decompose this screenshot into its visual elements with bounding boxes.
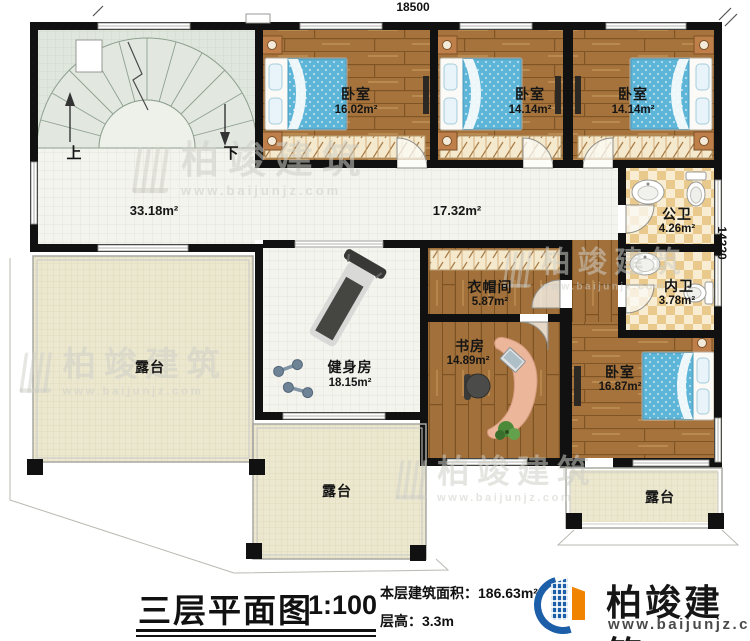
plan-scale: 1:100 <box>308 590 377 621</box>
room-label-private-bathroom: 内卫 <box>664 279 694 294</box>
stairs-down-label: 下 <box>223 146 238 162</box>
toilet-icon-public-bathroom <box>686 172 706 206</box>
room-label-bedroom-bottom: 卧室 <box>605 365 635 380</box>
title-underline-thin <box>136 635 376 637</box>
floor-height-value: 3.3m <box>422 613 454 629</box>
brand-building-blue-icon <box>551 578 568 620</box>
brand-building-orange-icon <box>570 586 585 620</box>
floor-height-line: 层高：3.3m <box>380 611 454 631</box>
room-area-public-bathroom: 4.26m² <box>659 223 695 235</box>
room-area-corridor: 17.32m² <box>433 204 481 218</box>
room-label-study: 书房 <box>455 339 485 354</box>
title-underline <box>136 629 376 632</box>
room-area-bedroom-top-left: 16.02m² <box>335 104 378 116</box>
room-area-private-bathroom: 3.78m² <box>659 295 695 307</box>
room-area-bedroom-bottom: 16.87m² <box>599 381 642 393</box>
floor-height-label: 层高： <box>380 613 422 629</box>
brand-logo-icon <box>534 574 600 636</box>
floor-area-label: 本层建筑面积： <box>380 585 478 601</box>
sink-icon-private-bathroom <box>630 253 660 275</box>
room-label-terrace-left: 露台 <box>135 360 165 375</box>
floor-area-value: 186.63m² <box>478 585 538 601</box>
stairs-up-label: 上 <box>66 146 81 162</box>
room-label-gym: 健身房 <box>328 360 373 375</box>
room-label-public-bathroom: 公卫 <box>662 207 692 222</box>
room-label-terrace-bottom: 露台 <box>322 484 352 499</box>
dimension-width: 18500 <box>396 1 429 14</box>
room-area-study: 14.89m² <box>447 355 490 367</box>
room-area-hall: 33.18m² <box>130 204 178 218</box>
plan-title: 三层平面图 <box>138 584 313 632</box>
room-area-gym: 18.15m² <box>329 377 372 389</box>
sink-icon-public-bathroom <box>632 180 664 204</box>
floor-area-line: 本层建筑面积：186.63m² <box>380 583 538 603</box>
room-label-terrace-right: 露台 <box>645 490 675 505</box>
room-area-bedroom-top-middle: 14.14m² <box>509 104 552 116</box>
dimension-height: 14220 <box>715 221 729 265</box>
floor-plan-page: 柏竣建筑 www.baijunjz.com 柏竣建筑 www.baijunjz.… <box>0 0 750 641</box>
room-area-cloakroom: 5.87m² <box>472 296 508 308</box>
room-label-bedroom-top-right: 卧室 <box>618 87 648 102</box>
room-label-cloakroom: 衣帽间 <box>468 280 513 295</box>
brand-url: www.baijunjz.com <box>608 616 750 633</box>
room-label-bedroom-top-middle: 卧室 <box>515 87 545 102</box>
room-area-bedroom-top-right: 14.14m² <box>612 104 655 116</box>
room-label-bedroom-top-left: 卧室 <box>341 87 371 102</box>
